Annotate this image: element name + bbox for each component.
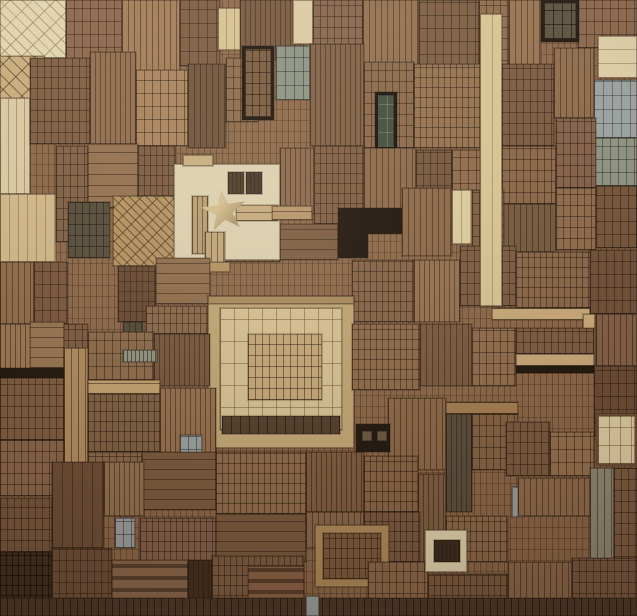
wood-block xyxy=(614,468,637,568)
wood-block xyxy=(183,155,213,166)
wood-block xyxy=(306,596,319,616)
wood-block xyxy=(492,308,590,320)
wood-block xyxy=(516,354,594,366)
wood-block xyxy=(88,380,160,394)
wood-block xyxy=(480,14,502,306)
wood-block xyxy=(516,252,592,308)
wood-block xyxy=(188,64,226,148)
wood-block xyxy=(402,188,452,256)
wood-block xyxy=(246,172,262,194)
wood-block xyxy=(596,314,637,366)
wood-block xyxy=(0,378,64,440)
wood-block xyxy=(30,322,64,368)
wood-block xyxy=(280,224,338,260)
wood-block xyxy=(502,204,556,252)
wood-block xyxy=(364,456,418,512)
wood-block xyxy=(180,0,220,66)
wood-block xyxy=(142,452,216,510)
wood-block xyxy=(419,0,479,68)
wood-block xyxy=(52,462,104,548)
wood-block xyxy=(596,186,637,248)
wood-block xyxy=(556,118,596,188)
wood-block xyxy=(377,431,387,441)
wood-block xyxy=(30,58,90,144)
wood-block xyxy=(338,208,402,234)
wood-block xyxy=(594,80,637,138)
wood-block xyxy=(90,52,136,144)
wood-block xyxy=(472,328,516,386)
wood-block xyxy=(0,368,64,378)
wood-block xyxy=(550,432,594,476)
wood-block xyxy=(598,36,637,78)
wood-block xyxy=(0,98,30,194)
wood-block xyxy=(228,172,244,194)
wood-block xyxy=(352,324,420,390)
printing-blocks-collage xyxy=(0,0,637,616)
wood-block xyxy=(123,350,157,362)
wood-block xyxy=(446,414,472,512)
wood-block xyxy=(216,514,306,562)
wood-block xyxy=(0,262,34,324)
wood-block xyxy=(363,0,419,66)
wood-block xyxy=(452,190,472,244)
wood-block xyxy=(293,0,313,44)
wood-block xyxy=(594,138,637,186)
wood-block xyxy=(414,260,460,322)
wood-block xyxy=(502,64,554,146)
wood-block xyxy=(375,92,397,150)
wood-block xyxy=(140,518,216,562)
wood-block xyxy=(541,0,579,42)
wood-block xyxy=(554,48,594,118)
wood-block xyxy=(352,260,414,322)
wood-block xyxy=(115,518,135,548)
wood-block xyxy=(502,146,556,204)
wood-block xyxy=(154,334,210,386)
wood-block xyxy=(113,196,175,266)
wood-block xyxy=(556,188,596,250)
wood-block xyxy=(242,46,274,120)
wood-block xyxy=(516,328,594,354)
wood-block xyxy=(590,468,614,568)
wood-block xyxy=(414,64,480,148)
wood-block xyxy=(590,250,637,314)
wood-block xyxy=(446,402,518,414)
wood-block xyxy=(596,414,637,466)
wood-block xyxy=(310,44,364,146)
artwork-photo xyxy=(0,0,637,616)
wood-block xyxy=(272,206,312,220)
wood-block xyxy=(68,202,110,258)
wood-block xyxy=(434,540,460,562)
wood-block xyxy=(208,296,354,304)
wood-block xyxy=(362,431,372,441)
wood-block xyxy=(518,478,590,516)
wood-block xyxy=(0,498,52,552)
wood-block xyxy=(506,422,550,476)
wood-block xyxy=(306,452,364,512)
wood-block xyxy=(0,194,56,262)
wood-block xyxy=(420,324,472,386)
wood-block xyxy=(216,452,306,514)
wood-block xyxy=(280,148,314,214)
wood-block xyxy=(338,234,368,258)
wood-block xyxy=(146,306,208,334)
wood-block xyxy=(516,366,594,373)
wood-block xyxy=(136,70,188,146)
wood-block xyxy=(509,0,541,66)
wood-block xyxy=(0,0,66,58)
wood-block xyxy=(88,394,160,452)
wood-block xyxy=(218,8,242,50)
wood-block xyxy=(222,416,340,434)
wood-block xyxy=(34,262,68,324)
wood-block xyxy=(156,258,210,304)
wood-block xyxy=(276,46,310,100)
wood-block xyxy=(104,462,144,516)
wood-block xyxy=(248,334,322,400)
